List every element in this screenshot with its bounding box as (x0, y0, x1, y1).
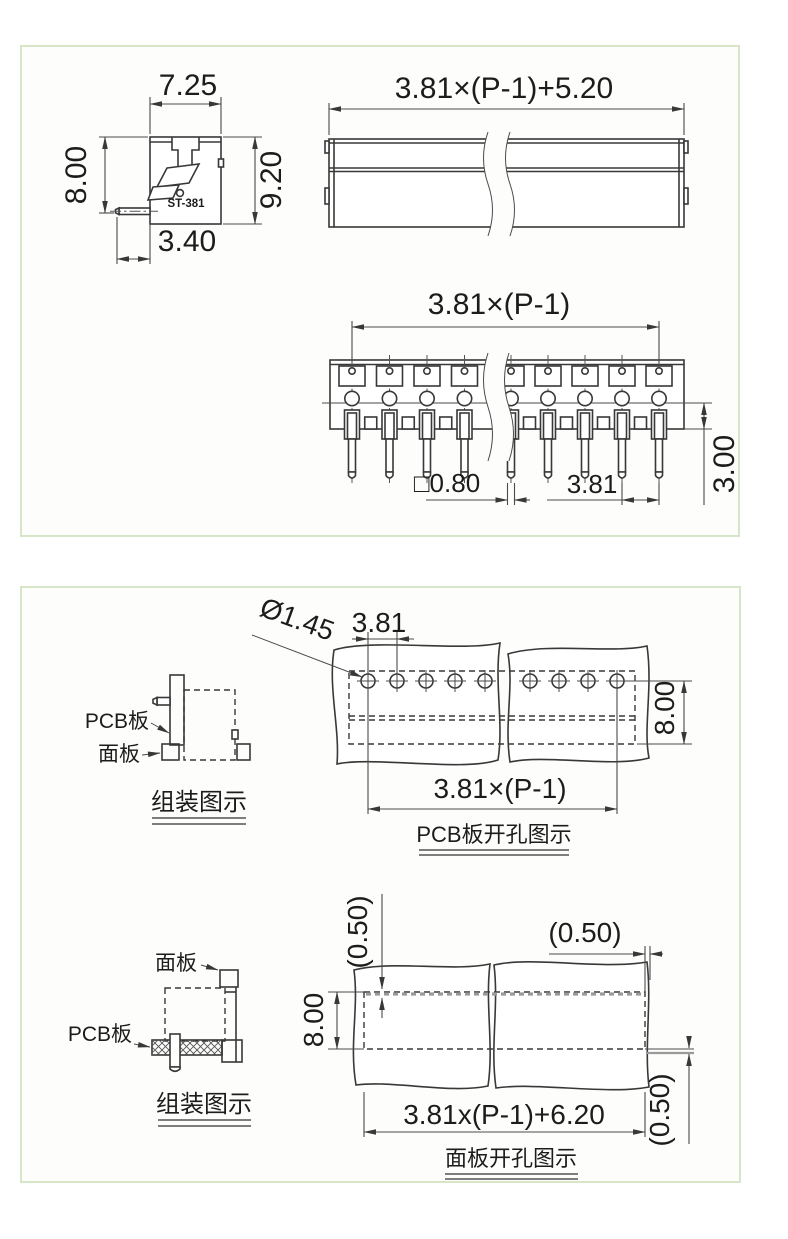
dim-cutout-height: 8.00 (298, 993, 329, 1048)
dimension-drawing-bottom: PCB板 面板 组装图示 (22, 588, 739, 1181)
drawing-panel-top: ST-381 7.25 8.00 9.20 (20, 45, 740, 537)
dim-total-width: 3.81×(P-1)+5.20 (395, 72, 613, 105)
dim-side-width: 7.25 (159, 69, 217, 102)
bottom-view: 3.81×(P-1) 3.00 □0.80 3.81 (322, 288, 738, 505)
dim-pitch: 3.81 (567, 469, 618, 499)
panel-label: 面板 (98, 743, 140, 766)
pcb-drill-view: Ø1.45 3.81 8.00 3.81×(P-1) PCB板开孔图示 (252, 591, 692, 855)
panel-section-bottom (222, 1040, 242, 1062)
assembly-caption: 组装图示 (156, 1091, 252, 1118)
panel-section-top (220, 970, 238, 987)
drawing-page: ST-381 7.25 8.00 9.20 (0, 0, 788, 1239)
dim-gap-right: (0.50) (548, 917, 621, 948)
dim-hole-dia: Ø1.45 (256, 591, 338, 646)
dim-gap-top: (0.50) (342, 895, 373, 968)
dim-gap-bottom: (0.50) (644, 1073, 675, 1146)
dimension-drawing-top: ST-381 7.25 8.00 9.20 (22, 47, 738, 535)
model-label: ST-381 (167, 198, 205, 210)
front-view: 3.81×(P-1)+5.20 (325, 72, 688, 236)
assembly-view-bottom: 面板 PCB板 组装图示 (68, 952, 252, 1126)
dim-pin-span: 3.81×(P-1) (428, 288, 571, 321)
dim-side-height: 8.00 (60, 146, 93, 204)
panel-label: 面板 (155, 952, 197, 975)
dim-cutout-width: 3.81x(P-1)+6.20 (403, 1099, 605, 1130)
side-view: ST-381 7.25 8.00 9.20 (60, 69, 288, 264)
assembly-view-top: PCB板 面板 组装图示 (85, 675, 250, 824)
dim-drill-height: 8.00 (649, 681, 680, 736)
pcb-label: PCB板 (85, 710, 149, 733)
dim-drill-span: 3.81×(P-1) (433, 773, 566, 804)
assembly-caption: 组装图示 (151, 789, 247, 816)
panel-cutout-caption: 面板开孔图示 (445, 1146, 577, 1171)
panel-section-right (237, 744, 250, 760)
panel-section-left (162, 744, 179, 760)
dim-pin-length: 3.00 (708, 435, 738, 493)
drawing-panel-bottom: PCB板 面板 组装图示 (20, 586, 741, 1183)
dim-pin-offset: 3.40 (158, 225, 216, 258)
dim-drill-pitch: 3.81 (352, 607, 407, 638)
dim-pin-square: □0.80 (414, 468, 480, 498)
dim-side-total-height: 9.20 (255, 151, 288, 209)
panel-cutout-view: 8.00 (0.50) (0.50) (0.50) (298, 894, 694, 1179)
pcb-label: PCB板 (68, 1023, 132, 1046)
pcb-board-section (170, 675, 184, 745)
pcb-drill-caption: PCB板开孔图示 (416, 822, 571, 847)
